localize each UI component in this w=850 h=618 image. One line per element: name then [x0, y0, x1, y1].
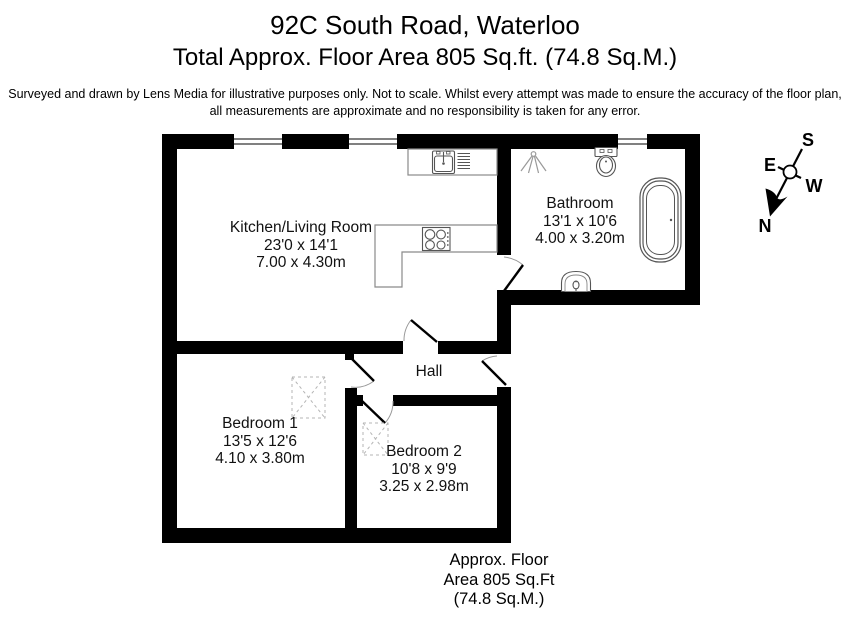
room-dims-imperial: 10'8 x 9'9 — [314, 461, 534, 479]
compass-west-label: W — [806, 176, 823, 196]
hob-icon — [423, 228, 451, 251]
room-dims-metric: 3.25 x 2.98m — [314, 478, 534, 496]
compass-north-label: N — [759, 216, 772, 236]
room-dims-metric: 4.00 x 3.20m — [470, 230, 690, 248]
basin-icon — [562, 272, 591, 292]
room-name: Bedroom 1 — [150, 415, 370, 433]
window-kitchen-1 — [233, 134, 283, 149]
room-dims-imperial: 23'0 x 14'1 — [191, 237, 411, 255]
footer-area-note: Approx. Floor Area 805 Sq.Ft (74.8 Sq.M.… — [399, 551, 599, 610]
room-name: Kitchen/Living Room — [191, 219, 411, 237]
room-label-bedroom2: Bedroom 2 10'8 x 9'9 3.25 x 2.98m — [314, 443, 534, 496]
footer-line-2: Area 805 Sq.Ft — [399, 571, 599, 591]
room-label-bathroom: Bathroom 13'1 x 10'6 4.00 x 3.20m — [470, 195, 690, 248]
room-name: Bathroom — [470, 195, 690, 213]
room-name: Hall — [319, 363, 539, 381]
footer-line-1: Approx. Floor — [399, 551, 599, 571]
window-bathroom — [617, 134, 648, 149]
door-kitchen — [404, 320, 437, 342]
toilet-icon — [595, 148, 617, 177]
floorplan-page: 92C South Road, Waterloo Total Approx. F… — [0, 0, 850, 618]
window-kitchen-2 — [348, 134, 398, 149]
floorplan-drawing: S E W N — [0, 0, 850, 618]
compass-icon: S E W N — [759, 130, 823, 236]
room-dims-imperial: 13'1 x 10'6 — [470, 213, 690, 231]
room-label-kitchen-living: Kitchen/Living Room 23'0 x 14'1 7.00 x 4… — [191, 219, 411, 272]
room-dims-metric: 7.00 x 4.30m — [191, 254, 411, 272]
room-label-hall: Hall — [319, 363, 539, 381]
hatch-icon-bedroom1 — [292, 377, 325, 418]
shower-icon — [521, 152, 546, 173]
compass-south-label: S — [802, 130, 814, 150]
room-name: Bedroom 2 — [314, 443, 534, 461]
sink-icon — [433, 151, 455, 174]
compass-east-label: E — [764, 155, 776, 175]
footer-line-3: (74.8 Sq.M.) — [399, 590, 599, 610]
door-bathroom — [504, 257, 523, 291]
